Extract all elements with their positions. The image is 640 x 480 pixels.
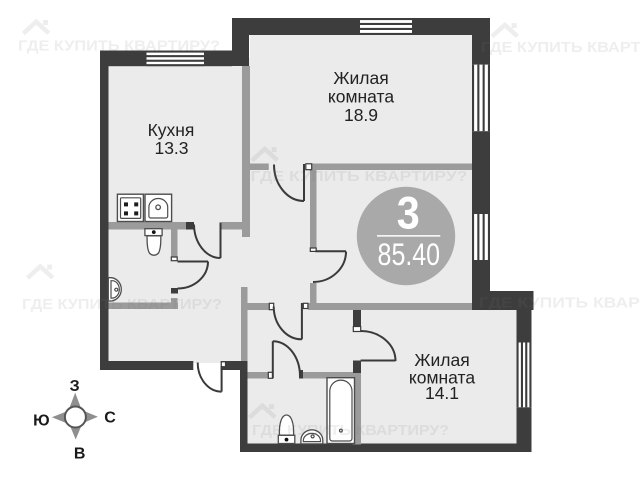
svg-text:З: З (70, 378, 80, 395)
svg-text:В: В (74, 446, 86, 463)
svg-text:85.40: 85.40 (378, 236, 441, 272)
svg-text:Жилая: Жилая (333, 68, 388, 88)
svg-text:Кухня: Кухня (148, 120, 195, 140)
svg-text:ГДЕ КУПИТЬ КВАРТИРУ?: ГДЕ КУПИТЬ КВАРТИРУ? (481, 39, 640, 56)
svg-text:14.1: 14.1 (425, 383, 459, 403)
svg-text:ГДЕ КУПИТЬ КВАРТИРУ?: ГДЕ КУПИТЬ КВАРТИРУ? (252, 422, 449, 439)
svg-text:ГДЕ КУПИТЬ КВАРТИРУ?: ГДЕ КУПИТЬ КВАРТИРУ? (18, 38, 220, 55)
svg-text:С: С (104, 410, 116, 427)
svg-text:ГДЕ КУПИТЬ КВАРТИРУ?: ГДЕ КУПИТЬ КВАРТИРУ? (251, 168, 468, 185)
svg-text:комната: комната (328, 87, 394, 107)
svg-text:13.3: 13.3 (154, 138, 188, 158)
svg-text:18.9: 18.9 (344, 105, 378, 125)
svg-text:ГДЕ КУПИТЬ КВАРТИРУ?: ГДЕ КУПИТЬ КВАРТИРУ? (22, 296, 222, 313)
svg-text:3: 3 (397, 187, 420, 238)
svg-text:Ю: Ю (33, 412, 50, 429)
svg-text:ГДЕ КУПИТЬ КВАРТИРУ?: ГДЕ КУПИТЬ КВАРТИРУ? (479, 295, 640, 312)
